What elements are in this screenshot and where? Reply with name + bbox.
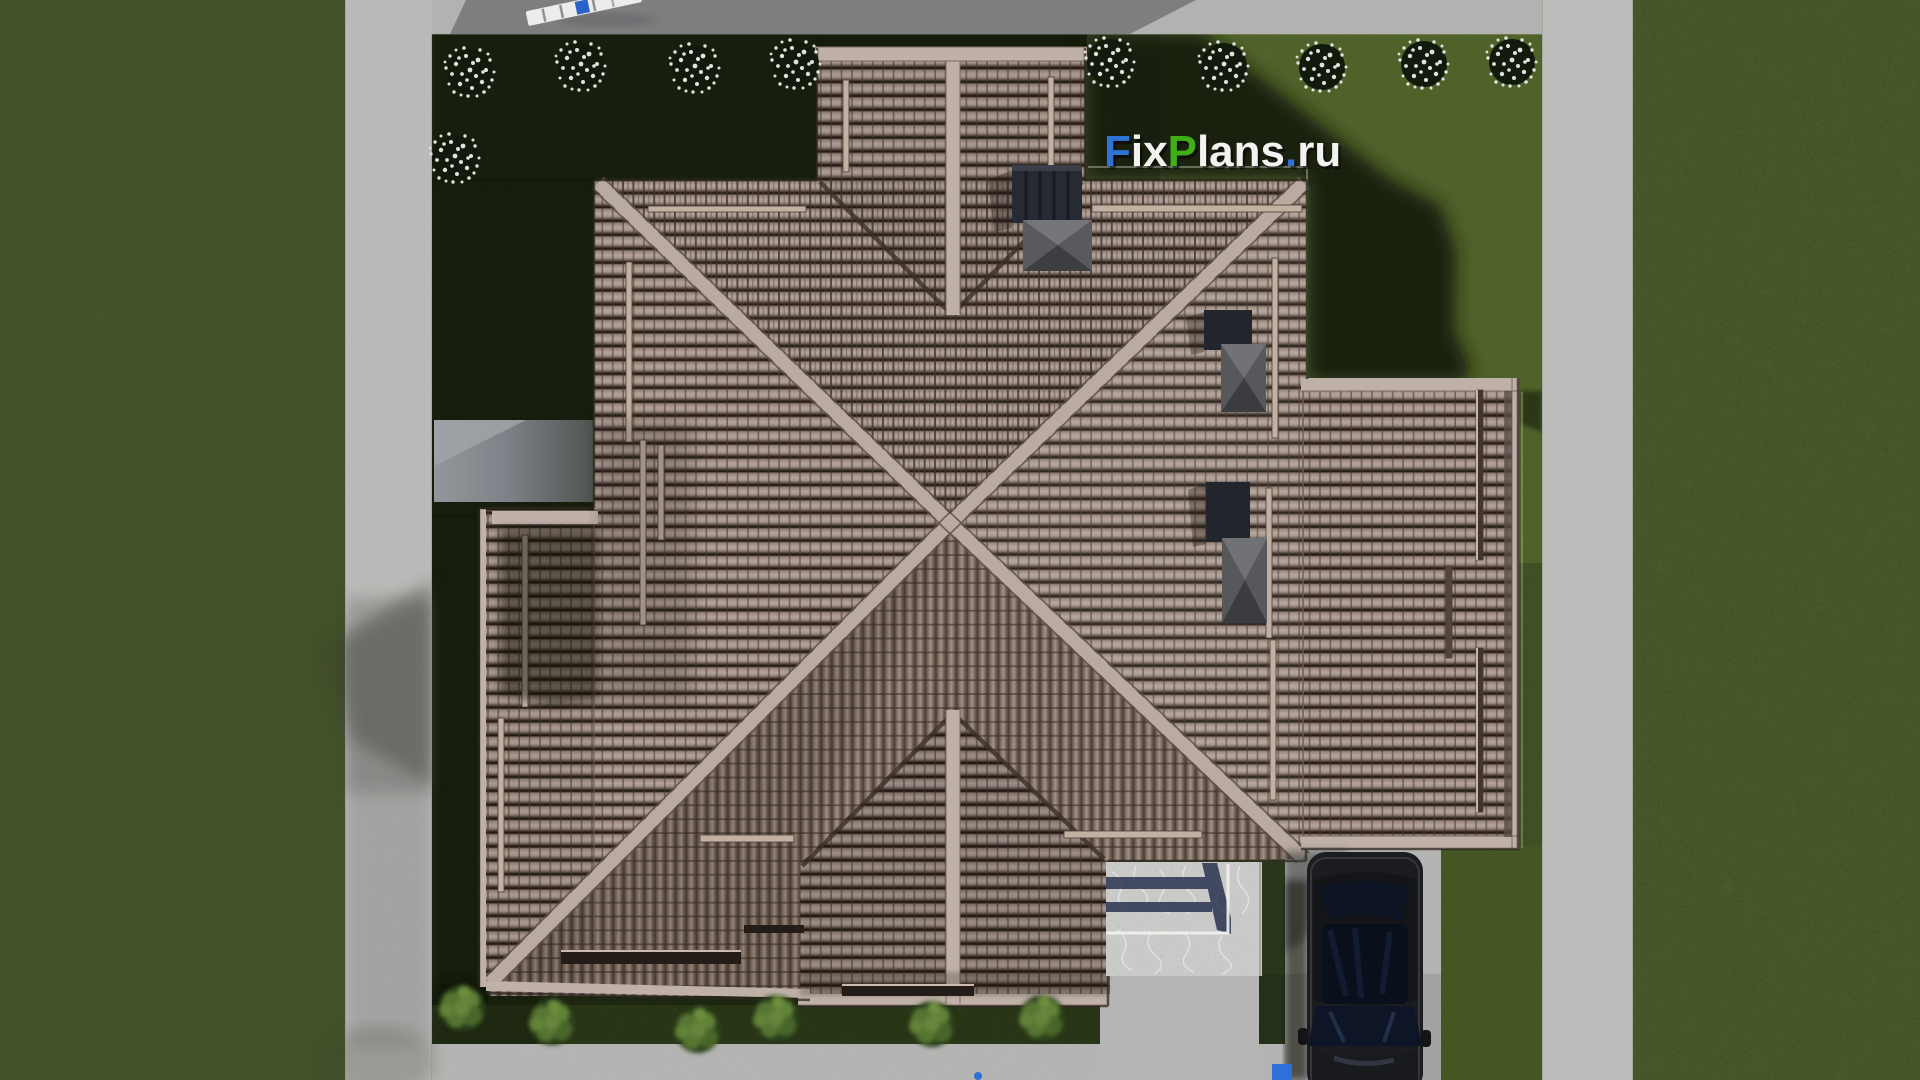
svg-text:FixPlans.ru: FixPlans.ru bbox=[1104, 127, 1341, 176]
